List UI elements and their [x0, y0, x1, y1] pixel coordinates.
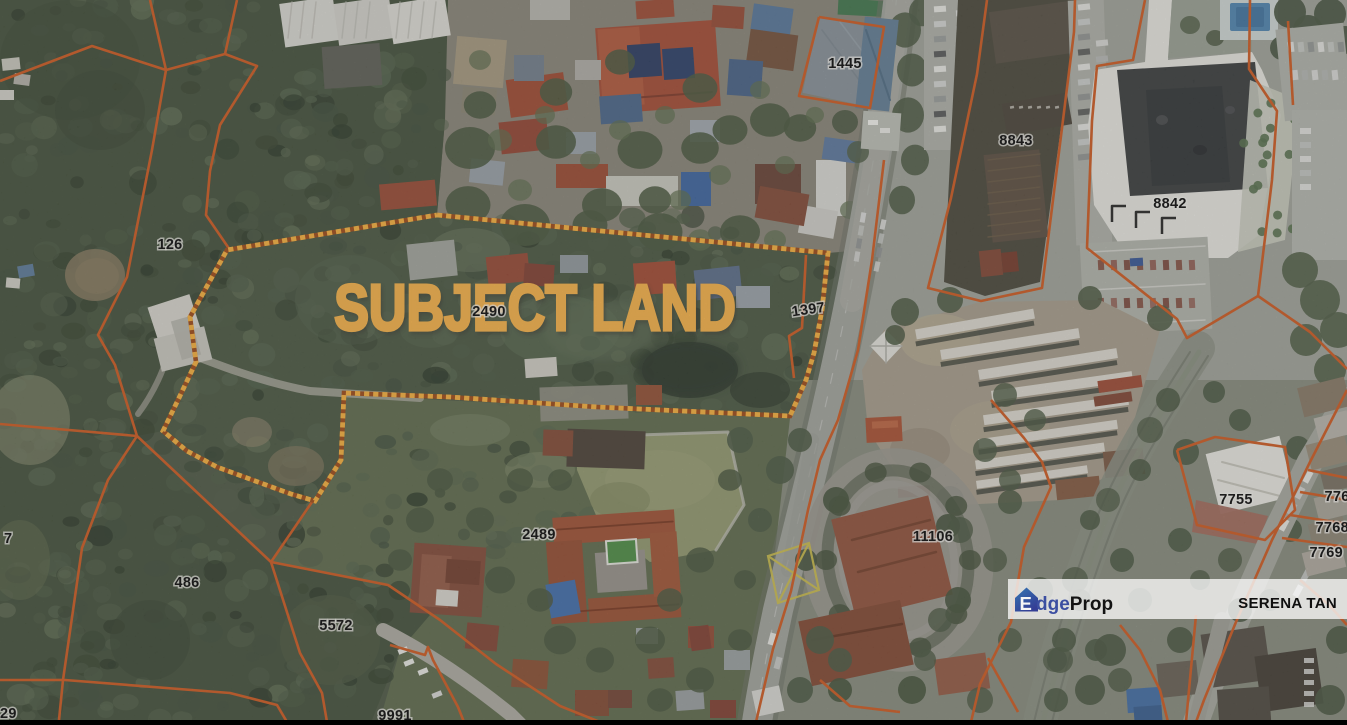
svg-text:dgeProp: dgeProp [1036, 594, 1113, 615]
svg-text:E: E [1020, 593, 1032, 614]
svg-text:SERENA TAN: SERENA TAN [1238, 595, 1337, 612]
